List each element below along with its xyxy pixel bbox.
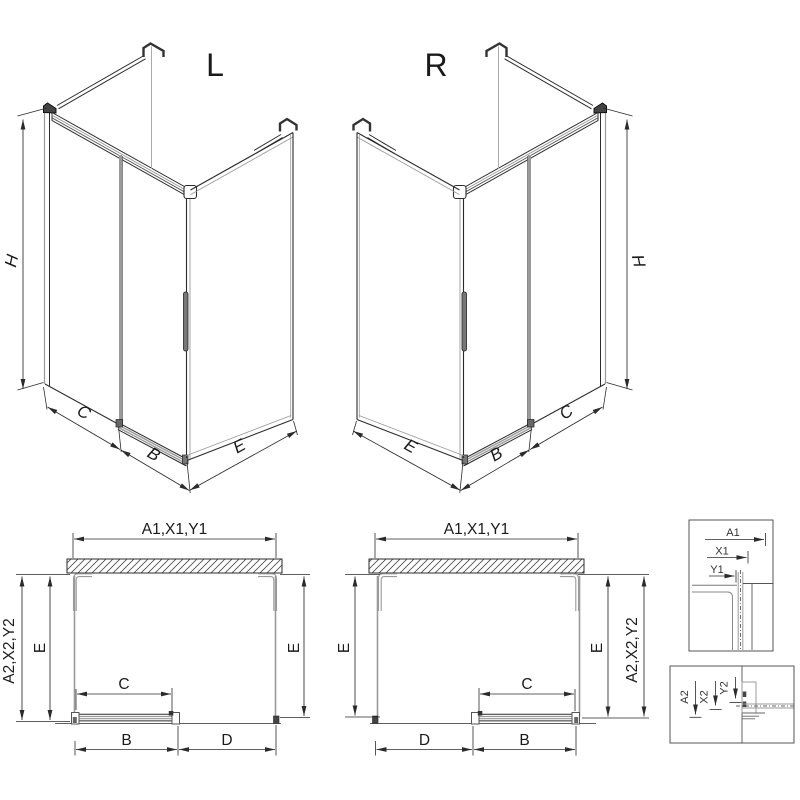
detail-box-top [689,520,773,651]
iso-right-dim-b: B [486,443,505,465]
plan-right-dim-a1: A1,X1,Y1 [444,521,510,538]
iso-right-drawing [353,44,633,494]
plan-left-dim-d: D [221,732,232,749]
iso-right-dim-e: E [401,435,421,457]
plan-right-dim-a2: A2,X2,Y2 [624,617,641,683]
plan-left-dim-a1: A1,X1,Y1 [142,521,208,538]
drawing-canvas: L H C B E R H C B E A1,X1,Y1 A2,X2,Y2 E … [0,0,800,800]
plan-left-dim-a2: A2,X2,Y2 [1,618,18,684]
iso-right-dim-c: C [556,401,577,424]
shower-enclosure-technical-drawing: L H C B E R H C B E A1,X1,Y1 A2,X2,Y2 E … [0,0,800,800]
plan-right-dim-e-right: E [589,643,606,653]
plan-right-dim-e-left: E [336,643,353,653]
iso-left-dim-e: E [230,435,250,457]
plan-right-dim-b: B [519,732,529,749]
iso-right-title: R [424,47,447,83]
plan-right-dim-d: D [419,732,430,749]
plan-left-dim-e-right: E [286,643,303,653]
detail-top-dim-x1: X1 [715,546,728,558]
iso-left-title: L [206,47,224,83]
detail-bottom-dim-x2: X2 [699,690,711,703]
detail-top-dim-y1: Y1 [710,564,723,576]
plan-right-dim-c: C [521,676,532,693]
iso-left-dim-h: H [1,252,22,269]
plan-left-dim-e-left: E [32,643,49,653]
detail-bottom-dim-y2: Y2 [719,681,731,694]
detail-top-dim-a1: A1 [726,527,739,539]
plan-left-dim-c: C [118,676,129,693]
plan-left-drawing [16,533,310,756]
plan-left-dim-b: B [121,732,131,749]
iso-left-dim-c: C [74,401,95,424]
iso-left-dim-b: B [144,443,163,465]
detail-bottom-dim-a2: A2 [679,690,691,703]
plan-left-wall [67,559,282,573]
plan-right-wall [369,559,584,573]
iso-right-dim-h: H [628,253,649,270]
